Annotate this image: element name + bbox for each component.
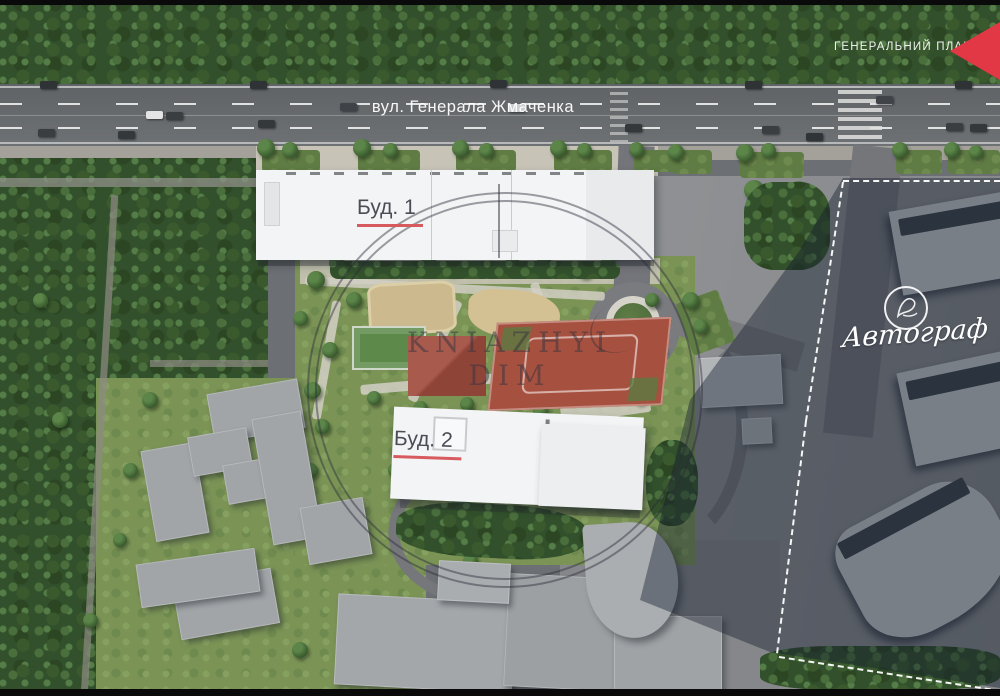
car: [166, 112, 183, 120]
building-1-label-text: Буд. 1: [357, 196, 416, 219]
watermark-line: [498, 184, 500, 258]
car: [745, 81, 762, 89]
car: [250, 81, 267, 89]
car: [806, 133, 823, 141]
building-1-label: Буд. 1: [357, 196, 416, 220]
car: [625, 124, 642, 132]
car: [146, 111, 163, 119]
car: [40, 81, 57, 89]
building-2-label-text: Буд. 2: [394, 427, 454, 452]
car: [340, 103, 357, 111]
street-name-label: вул. Генерала Жмаченка: [368, 98, 578, 117]
car: [762, 126, 779, 134]
watermark-text: KNIAZHYI DIM: [370, 326, 650, 392]
roof-vents: [286, 172, 466, 175]
roof-unit: [264, 182, 280, 226]
gray-building: [334, 593, 517, 693]
car: [258, 120, 275, 128]
letterbox-top: [0, 0, 1000, 5]
car: [118, 131, 135, 139]
car: [946, 123, 963, 131]
car: [876, 96, 893, 104]
car: [490, 80, 507, 88]
boundary-dashed: [843, 180, 1000, 182]
car: [955, 81, 972, 89]
building-1-label-underline: [357, 224, 423, 227]
site-plan-render: KNIAZHYI DIM ГЕНЕРАЛЬНИЙ ПЛАН вул. Генер…: [0, 0, 1000, 696]
neighbor-logo: Автограф: [830, 280, 1000, 360]
building-2-label: Буд. 2: [394, 427, 454, 453]
car: [970, 124, 987, 132]
letterbox-bottom: [0, 689, 1000, 696]
car: [38, 129, 55, 137]
neighbor-name-text: Автограф: [829, 312, 1000, 355]
